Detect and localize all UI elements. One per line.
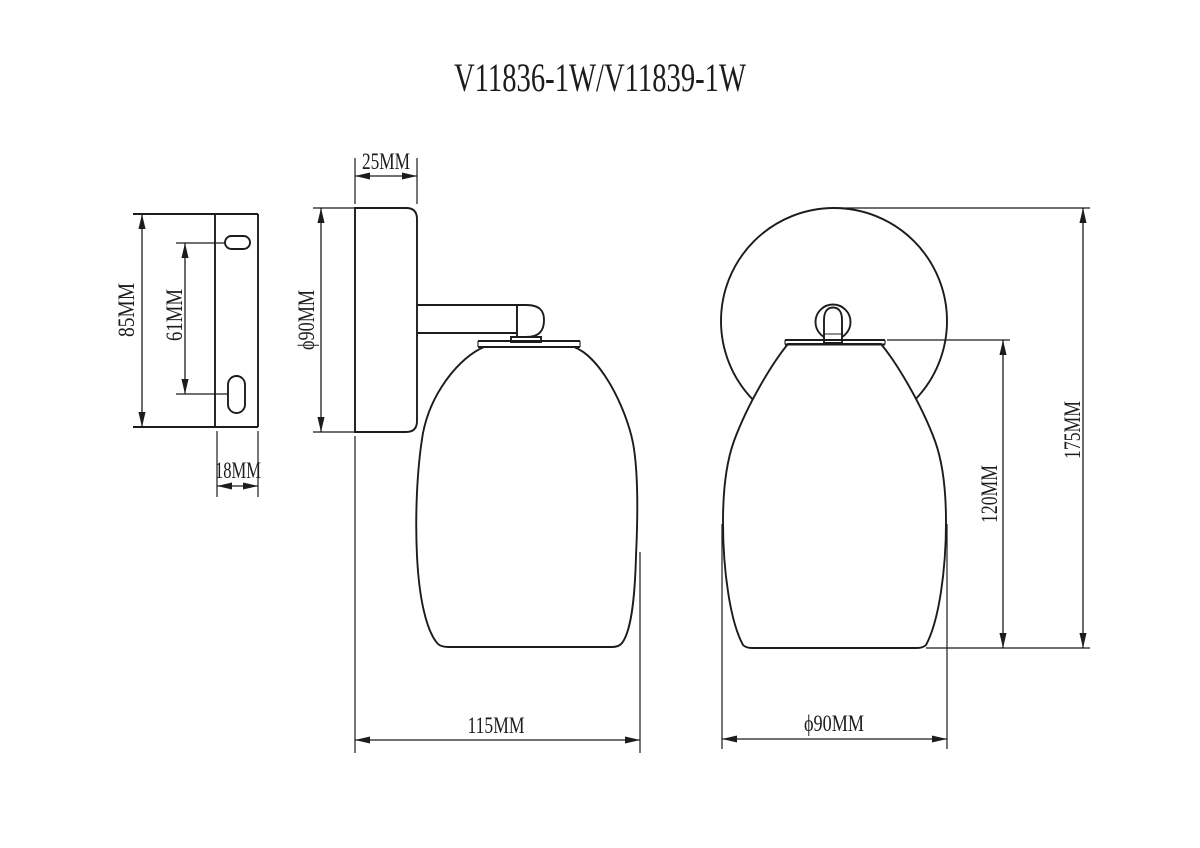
bracket-side-view: 85MM 61MM 18MM: [114, 214, 261, 497]
lamp-front-view: 175MM 120MM ϕ90MM: [721, 208, 1090, 749]
bracket-slot-top: [225, 236, 250, 249]
dim-175mm-label: 175MM: [1060, 401, 1085, 459]
lamp-side-view: 25MM ϕ90MM 115MM: [294, 149, 640, 753]
canopy-side-profile: [355, 208, 417, 432]
dim-85mm-label: 85MM: [114, 283, 139, 337]
bracket-slot-bottom: [228, 376, 245, 413]
dim-bracket-height: 85MM: [114, 214, 142, 427]
dim-61mm-label: 61MM: [162, 289, 187, 341]
drawing-root: V11836-1W/V11839-1W 85MM 61MM: [114, 55, 1090, 753]
page-title: V11836-1W/V11839-1W: [454, 55, 746, 100]
dim-18mm-label: 18MM: [215, 458, 261, 483]
dim-bracket-depth: 18MM: [215, 431, 261, 497]
dim-slot-spacing: 61MM: [162, 243, 228, 394]
dim-canopy-diameter: ϕ90MM: [294, 208, 355, 432]
shade-front-profile: [723, 344, 946, 648]
dim-canopy-depth: 25MM: [355, 149, 417, 204]
dim-phi90-front-label: ϕ90MM: [804, 711, 864, 736]
dim-25mm-label: 25MM: [362, 149, 410, 174]
arm-end-cap: [517, 305, 544, 337]
dim-115mm-label: 115MM: [468, 713, 525, 738]
dim-120mm-label: 120MM: [977, 465, 1002, 523]
shade-side-profile: [416, 347, 637, 647]
drawing-sheet: V11836-1W/V11839-1W 85MM 61MM: [0, 0, 1200, 848]
technical-drawing: V11836-1W/V11839-1W 85MM 61MM: [0, 0, 1200, 848]
dim-phi90-side-label: ϕ90MM: [294, 290, 319, 350]
knob-stem: [824, 308, 842, 344]
